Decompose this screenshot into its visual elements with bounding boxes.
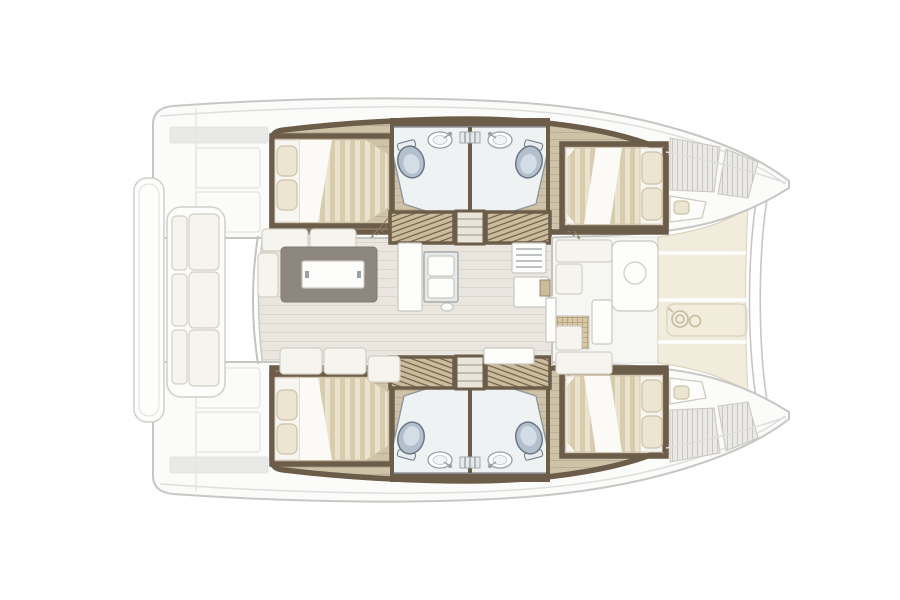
lounge-table (612, 241, 658, 311)
table-top (302, 261, 364, 288)
starboard-hull (153, 356, 789, 502)
saloon-aft-door (253, 236, 258, 364)
galley-cabinet (398, 243, 422, 311)
foredeck (658, 207, 748, 393)
catamaran-floor-plan (0, 0, 900, 600)
sink-basin (428, 256, 454, 276)
bench-cushions (172, 214, 219, 386)
dining-table (281, 247, 377, 302)
galley-faucet (441, 303, 453, 311)
page (0, 0, 900, 600)
cockpit-step (592, 300, 612, 344)
cockpit-seat (556, 264, 582, 294)
lower-counter (484, 348, 534, 364)
cockpit-seat (556, 352, 612, 374)
bow-crossbeam (750, 182, 771, 418)
cockpit-seat (556, 240, 612, 262)
cockpit-seat (556, 326, 582, 350)
stove-icon (512, 243, 546, 273)
port-hull (153, 98, 789, 244)
forward-sliding-door (546, 298, 556, 342)
storage-box (540, 280, 550, 296)
sink-basin (428, 278, 454, 298)
